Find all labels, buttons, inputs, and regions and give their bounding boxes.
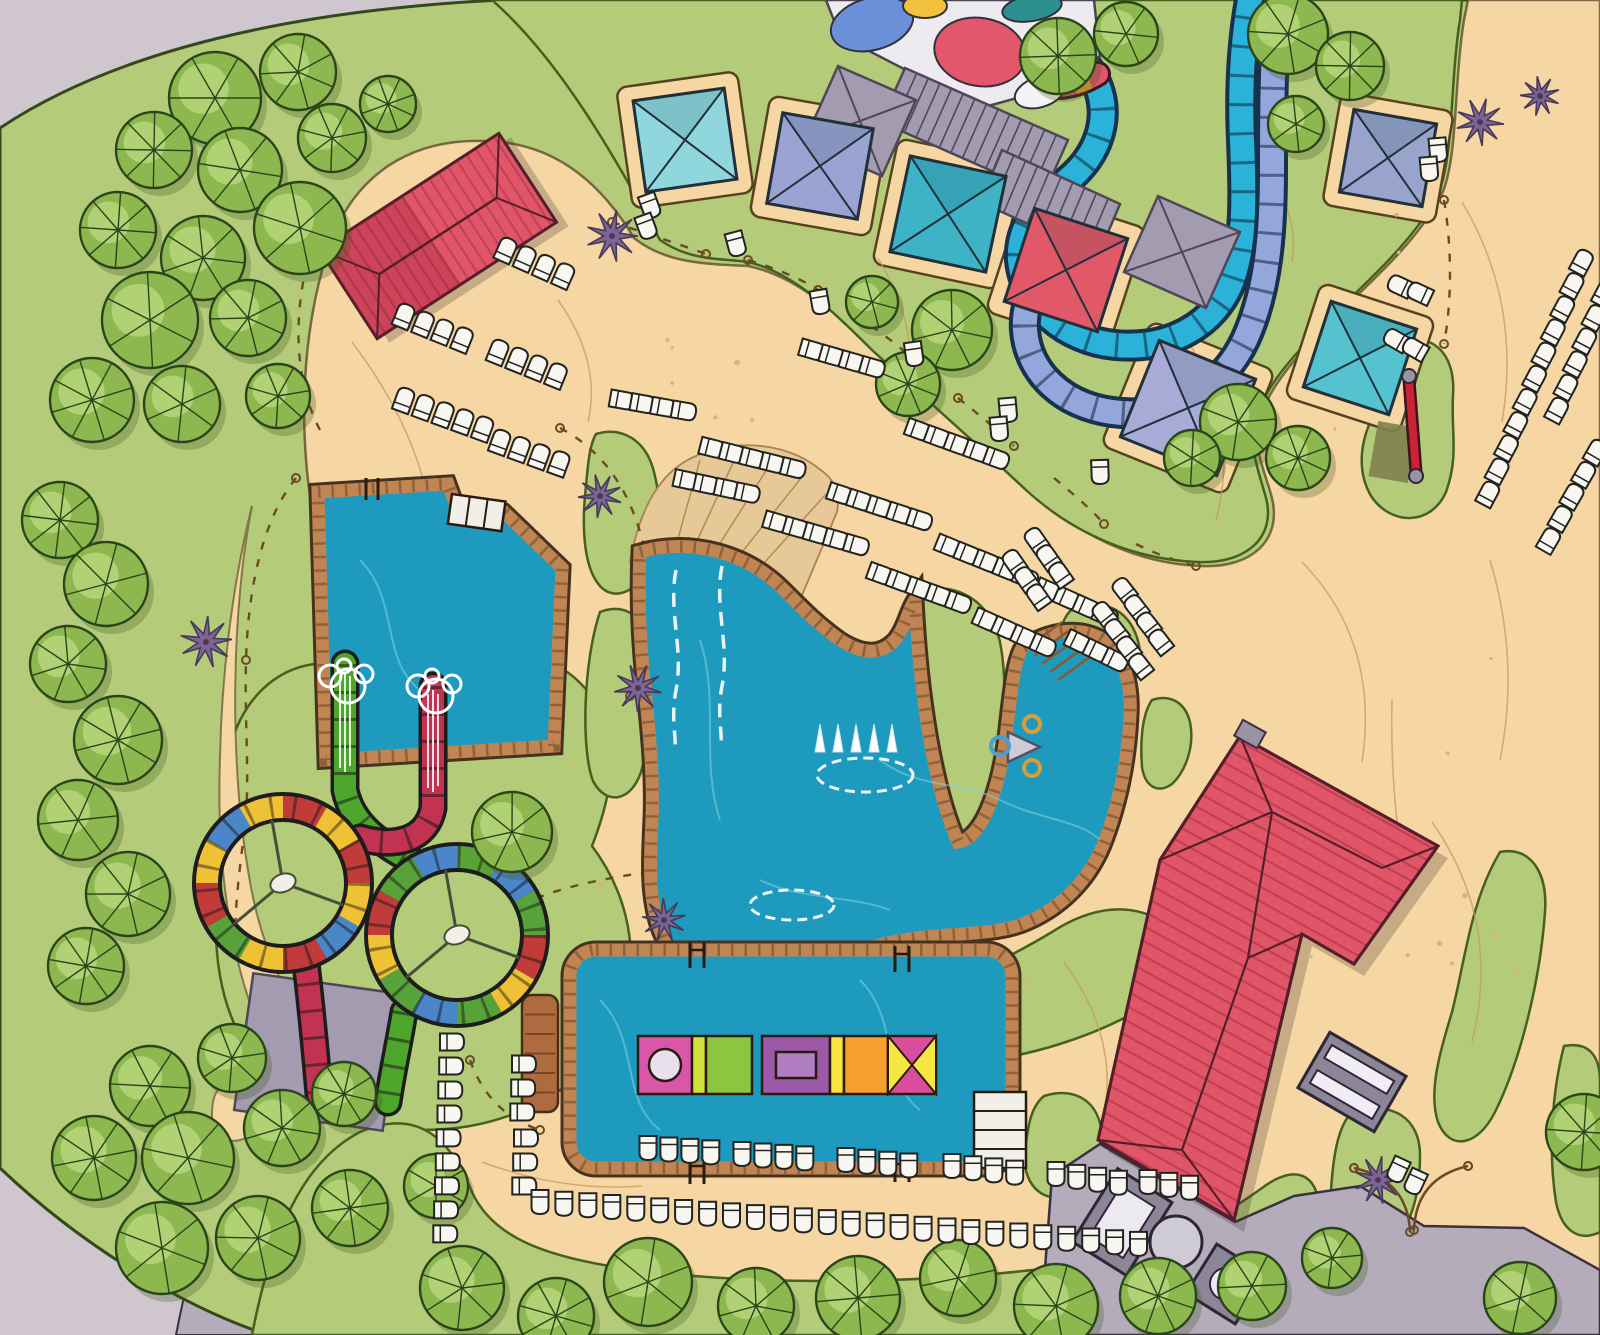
water-park-site-plan: [0, 0, 1600, 1335]
lounge-chair: [675, 1200, 692, 1224]
lounge-chair: [1130, 1232, 1147, 1256]
lounge-chair: [555, 1192, 572, 1216]
lounge-chair: [879, 1152, 896, 1176]
lounge-chair: [964, 1156, 981, 1180]
lounge-chair: [1082, 1229, 1099, 1253]
lounge-chair: [771, 1207, 788, 1231]
lounge-chair: [651, 1198, 668, 1222]
lounge-chair: [985, 1158, 1002, 1182]
lounge-chair: [1110, 1171, 1127, 1195]
lounge-chair: [900, 1154, 917, 1178]
lounge-chair: [439, 1058, 463, 1075]
lounge-chair: [796, 1146, 813, 1170]
lounge-chair: [944, 1154, 961, 1178]
lounge-chair: [1106, 1230, 1123, 1254]
lounge-chair: [838, 1148, 855, 1172]
lounge-chair: [671, 400, 698, 421]
lounge-chair: [1034, 1225, 1051, 1249]
lounge-chair: [1181, 1176, 1198, 1200]
lounge-chair: [440, 1034, 464, 1051]
lounge-chair: [1068, 1165, 1085, 1189]
cabana: [767, 113, 874, 220]
lounge-chair: [681, 1139, 698, 1163]
lounge-chair: [514, 1130, 538, 1147]
lounge-chair: [640, 1136, 657, 1160]
lounge-chair: [819, 1210, 836, 1234]
lounge-chair: [1058, 1227, 1075, 1251]
lounge-chair: [434, 1201, 458, 1218]
lounge-chair: [795, 1208, 812, 1232]
lounge-chair: [433, 1225, 457, 1242]
lounge-chair: [603, 1195, 620, 1219]
lounge-chair: [734, 1142, 751, 1166]
lounge-chair: [986, 1222, 1003, 1246]
lounge-chair: [436, 1153, 460, 1170]
lounge-chair: [512, 1056, 536, 1073]
lounge-chair: [1048, 1162, 1065, 1186]
lounge-chair: [1091, 460, 1109, 485]
lounge-chair: [1160, 1173, 1177, 1197]
lounge-chair: [747, 1205, 764, 1229]
lounge-chair: [858, 1150, 875, 1174]
lounge-chair: [810, 289, 831, 316]
lounge-chair: [438, 1106, 462, 1123]
lounge-chair: [510, 1104, 534, 1121]
lounge-chair: [915, 1217, 932, 1241]
lounge-chair: [775, 1145, 792, 1169]
lounge-chair: [435, 1177, 459, 1194]
lounge-chair: [699, 1202, 716, 1226]
lounge-chair: [1420, 156, 1439, 181]
cabana: [890, 156, 1006, 272]
lounge-chair: [437, 1129, 461, 1146]
lounge-chair: [723, 1203, 740, 1227]
lounge-chair: [532, 1190, 549, 1214]
lounge-chair: [1140, 1170, 1157, 1194]
lounge-chair: [754, 1144, 771, 1168]
lounge-chair: [990, 416, 1009, 441]
lounge-chair: [511, 1080, 535, 1097]
lounge-chair: [939, 1219, 956, 1243]
lounge-chair: [660, 1138, 677, 1162]
lounge-chair: [438, 1082, 462, 1099]
lounge-chair: [891, 1215, 908, 1239]
lounge-chair: [579, 1193, 596, 1217]
lounge-chair: [702, 1140, 719, 1164]
lounge-chair: [1006, 1161, 1023, 1185]
lounge-chair: [1010, 1224, 1027, 1248]
lounge-chair: [867, 1213, 884, 1237]
lounge-chair: [627, 1197, 644, 1221]
lounge-chair: [1089, 1168, 1106, 1192]
water-park-map: [0, 0, 1600, 1335]
lounge-chair: [843, 1212, 860, 1236]
cabana: [633, 88, 737, 192]
lounge-chair: [962, 1220, 979, 1244]
lounge-chair: [904, 341, 924, 367]
lounge-chair: [513, 1154, 537, 1171]
